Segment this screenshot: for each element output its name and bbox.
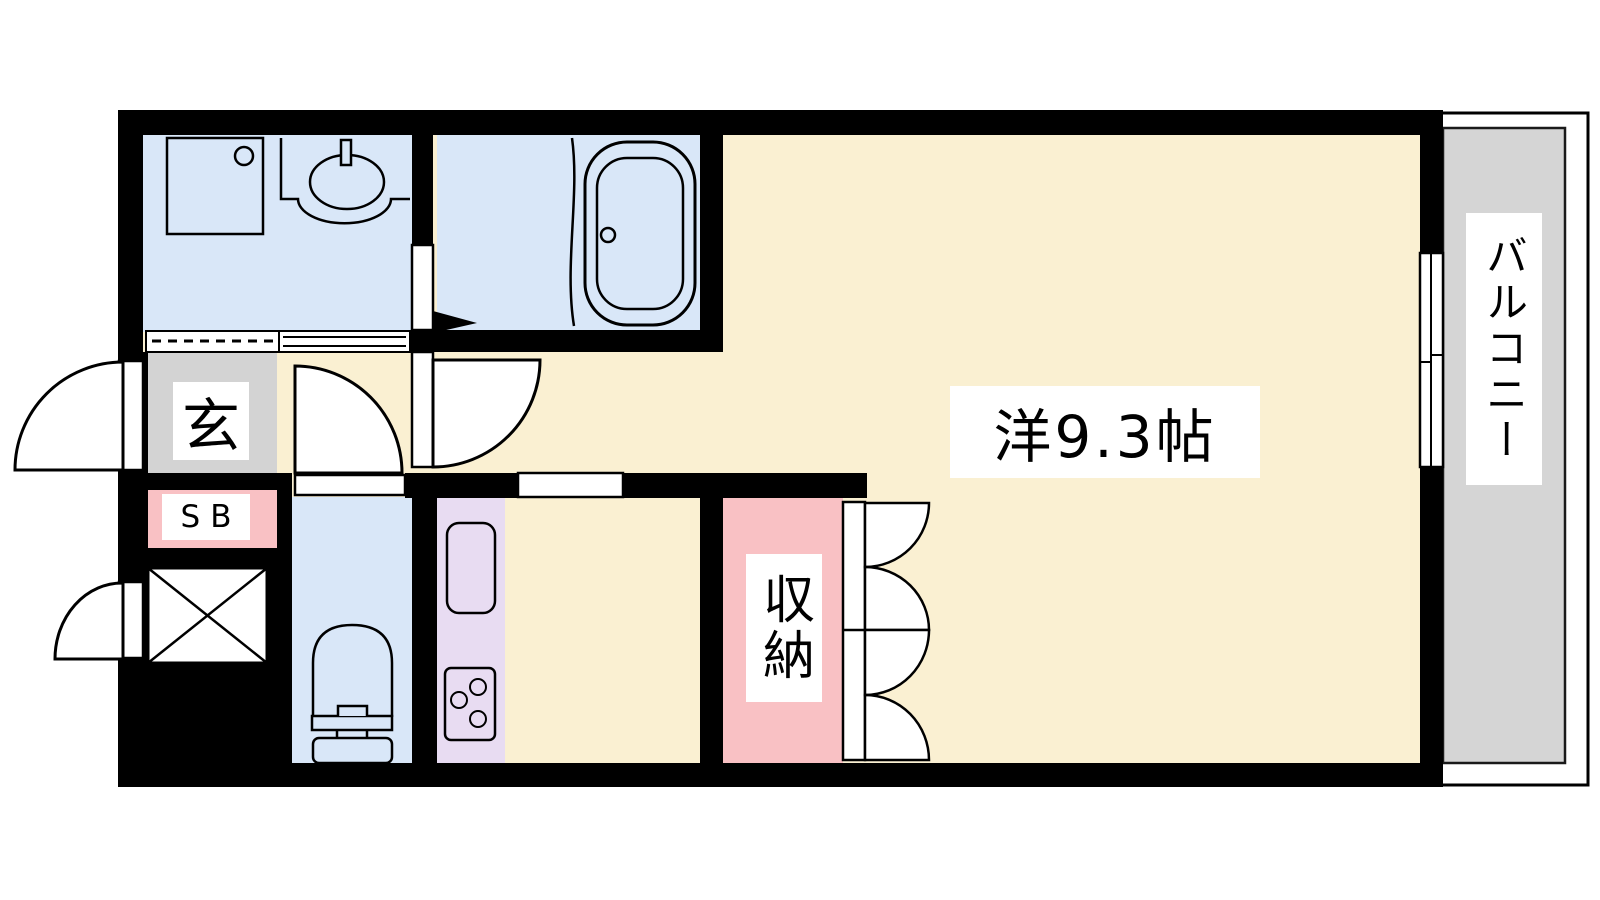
balcony-window: [1420, 253, 1443, 467]
bathroom-door-leaf: [412, 245, 433, 330]
meter-box-door-swing: [55, 583, 123, 659]
storage-label: 収納: [746, 554, 822, 702]
wall-washroom-bath: [412, 135, 433, 247]
floorplan-canvas: 玄 SB 収納 洋9.3帖 バルコニー: [0, 0, 1600, 900]
kitchen-opening: [518, 473, 623, 497]
entrance-door-swing: [15, 362, 123, 470]
balcony-label: バルコニー: [1466, 213, 1542, 485]
washroom-sliding-door: [146, 331, 410, 352]
wall-kitchen-storage: [700, 497, 723, 763]
wall-toilet-kitchen: [412, 497, 437, 763]
wall-bottom: [118, 763, 1443, 787]
hall-door-leaf: [412, 352, 433, 467]
closet-bifold-doors: [843, 502, 929, 760]
wall-hall-kitchen-b: [623, 473, 867, 498]
shoe-box-label: SB: [162, 494, 250, 540]
toilet-door-leaf: [295, 475, 405, 495]
wall-bath-right: [700, 135, 723, 352]
entrance-label: 玄: [173, 382, 249, 460]
wall-under-bath: [405, 330, 723, 352]
room-bathroom-floor: [437, 135, 700, 330]
main-room-label: 洋9.3帖: [950, 386, 1260, 478]
wall-hall-kitchen-a: [405, 473, 518, 498]
wall-top: [118, 110, 1443, 135]
